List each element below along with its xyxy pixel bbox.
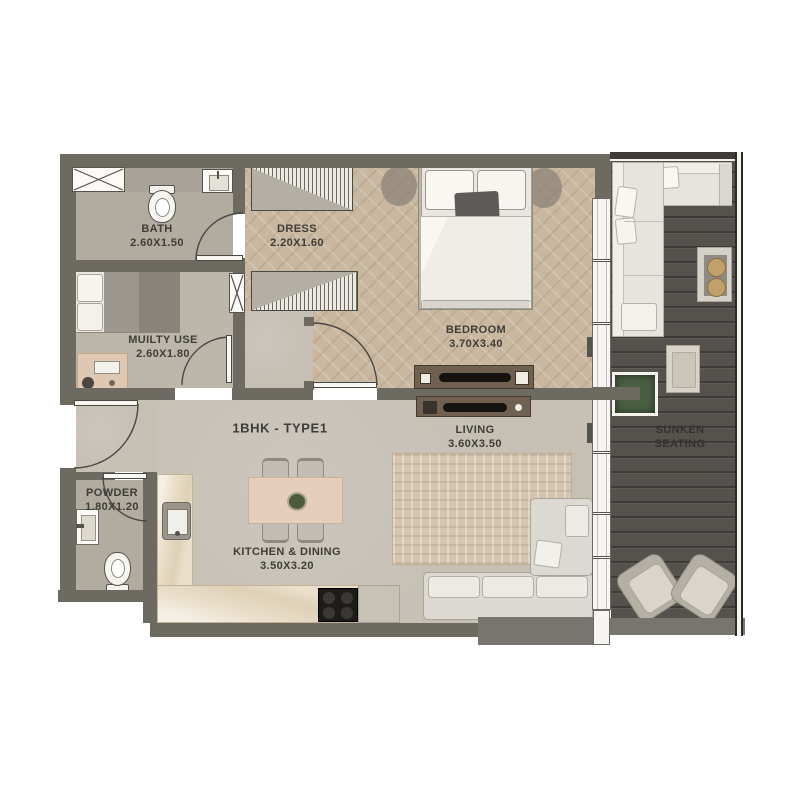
sunken-name2: SEATING [655, 437, 706, 451]
bedroom-door [313, 382, 377, 388]
room-label-bedroom: BEDROOM 3.70X3.40 [446, 323, 506, 351]
living-dims: 3.60X3.50 [448, 437, 502, 451]
bath-door [196, 255, 243, 261]
nightstand-left-icon [381, 166, 417, 206]
wardrobe-bottom-icon [251, 271, 358, 311]
living-sofa-icon [423, 572, 593, 620]
wall-multiuse-bottom [60, 388, 175, 400]
sunken-name: SUNKEN [655, 423, 706, 437]
balcony-side-table [666, 345, 700, 393]
kitchen-counter-end [358, 585, 400, 623]
entry-door [74, 400, 138, 406]
room-label-kitchen: KITCHEN & DINING 3.50X3.20 [233, 545, 341, 573]
wall-top [60, 154, 610, 168]
tv-console-bedroom [414, 365, 534, 389]
powder-door [103, 473, 147, 479]
bedroom-name: BEDROOM [446, 323, 506, 337]
wall-balcony-top-corner [595, 154, 611, 198]
coffee-table-icon [697, 247, 732, 302]
living-sofa-chaise [530, 498, 593, 576]
door-jamb [304, 317, 314, 326]
railing-right [735, 152, 743, 636]
room-label-living: LIVING 3.60X3.50 [448, 423, 502, 451]
kitchen-name: KITCHEN & DINING [233, 545, 341, 559]
wall-corridor-bottom [232, 388, 313, 400]
wardrobe-top-icon [251, 167, 353, 211]
cooktop-icon [318, 588, 358, 622]
powder-vanity-icon [76, 509, 99, 545]
wall-bath-right-upper [233, 168, 245, 214]
wall-window-crossing [592, 387, 640, 400]
window-band [592, 198, 611, 610]
dining-chair [297, 458, 324, 479]
double-bed-icon [418, 163, 533, 310]
dining-table-icon [248, 477, 343, 524]
multiuse-dims: 2.60X1.80 [128, 347, 198, 361]
dress-dims: 2.20X1.60 [270, 236, 324, 250]
entry-floor [76, 400, 157, 472]
room-label-sunken: SUNKEN SEATING [655, 423, 706, 451]
window-band-end [593, 610, 610, 645]
powder-name: POWDER [85, 486, 139, 500]
dining-chair [262, 522, 289, 543]
wall-bottom-main [150, 623, 478, 637]
room-label-dress: DRESS 2.20X1.60 [270, 222, 324, 250]
room-label-bath: BATH 2.60X1.50 [130, 222, 184, 250]
single-bed-icon [74, 270, 180, 333]
shaft-box-icon [72, 167, 125, 192]
plan-title: 1BHK - TYPE1 [232, 421, 327, 436]
bath-sink-icon [202, 169, 233, 193]
table-plant-icon [289, 494, 305, 509]
dining-chair [262, 458, 289, 479]
wall-bottom-pier [478, 617, 593, 645]
multiuse-name: MUILTY USE [128, 333, 198, 347]
living-name: LIVING [448, 423, 502, 437]
multiuse-door [226, 335, 232, 383]
wall-balcony-bottom [610, 618, 745, 635]
wall-left-lower [60, 468, 76, 602]
tv-console-living [416, 396, 531, 417]
shaft-box-small-icon [229, 273, 245, 313]
corridor-floor [245, 311, 313, 388]
kitchen-dims: 3.50X3.20 [233, 559, 341, 573]
bath-toilet-icon [148, 190, 176, 223]
desk-icon [77, 353, 128, 392]
bath-name: BATH [130, 222, 184, 236]
room-label-powder: POWDER 1.80X1.20 [85, 486, 139, 514]
bedroom-dims: 3.70X3.40 [446, 337, 506, 351]
wall-bath-divider [60, 260, 245, 272]
powder-dims: 1.80X1.20 [85, 500, 139, 514]
balcony-sofa-left [612, 162, 664, 337]
dining-chair [297, 522, 324, 543]
floor-plan: 1BHK - TYPE1 BATH 2.60X1.50 DRESS 2.20X1… [0, 0, 800, 800]
slider-handle [587, 337, 592, 357]
dress-name: DRESS [270, 222, 324, 236]
slider-handle [587, 423, 592, 443]
bath-dims: 2.60X1.50 [130, 236, 184, 250]
wall-powder-bottom [58, 590, 157, 602]
railing-top [610, 152, 743, 161]
room-label-multiuse: MUILTY USE 2.60X1.80 [128, 333, 198, 361]
kitchen-sink-icon [162, 502, 191, 540]
powder-toilet-icon [104, 552, 131, 586]
